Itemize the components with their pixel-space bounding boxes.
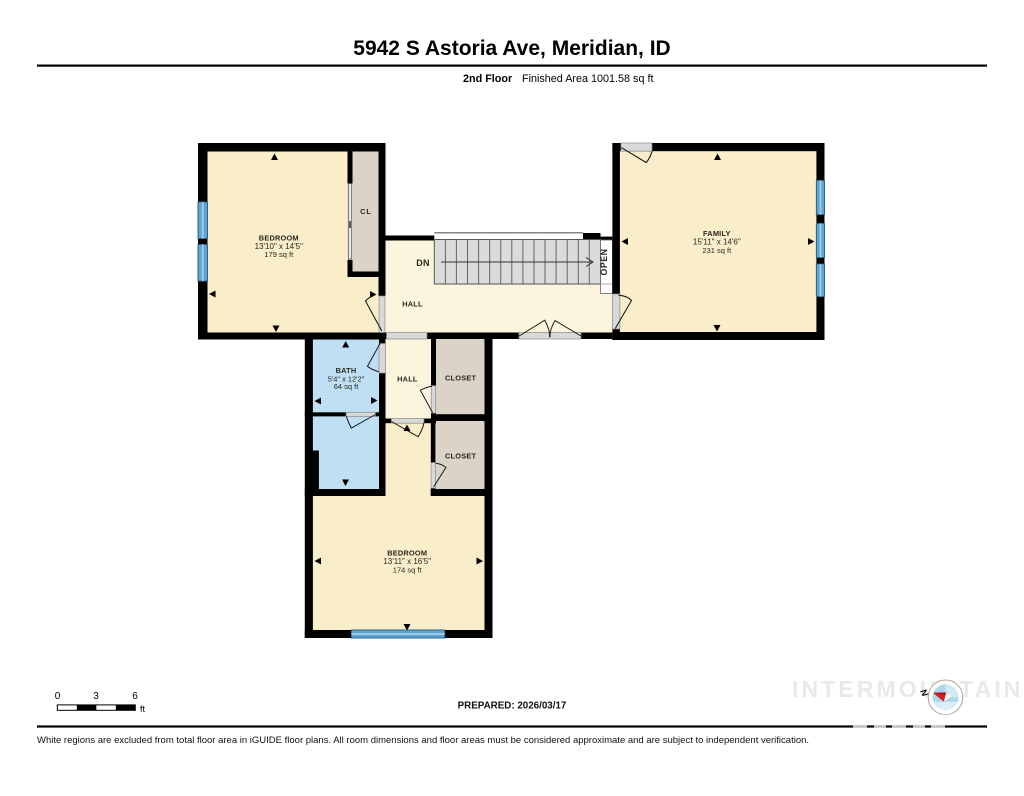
svg-text:White regions are excluded fro: White regions are excluded from total fl… xyxy=(37,735,809,746)
svg-text:Finished Area 1001.58 sq ft: Finished Area 1001.58 sq ft xyxy=(522,73,653,85)
svg-text:231 sq ft: 231 sq ft xyxy=(702,246,732,255)
svg-text:DN: DN xyxy=(416,258,429,268)
svg-text:HALL: HALL xyxy=(402,300,423,309)
svg-text:CLOSET: CLOSET xyxy=(445,373,476,382)
svg-text:6: 6 xyxy=(132,691,138,702)
svg-text:3: 3 xyxy=(93,691,99,702)
svg-text:174 sq ft: 174 sq ft xyxy=(393,566,423,575)
svg-text:ft: ft xyxy=(140,704,146,714)
svg-text:CLOSET: CLOSET xyxy=(445,451,476,460)
svg-text:179 sq ft: 179 sq ft xyxy=(264,250,294,259)
svg-text:INTERMOUNTAIN: INTERMOUNTAIN xyxy=(792,676,1024,702)
svg-text:CL: CL xyxy=(360,207,372,216)
svg-text:5942 S Astoria Ave, Meridian,: 5942 S Astoria Ave, Meridian, ID xyxy=(353,37,670,60)
svg-text:HALL: HALL xyxy=(397,374,418,383)
svg-text:2nd Floor: 2nd Floor xyxy=(463,73,513,85)
svg-text:64 sq ft: 64 sq ft xyxy=(334,382,360,391)
svg-text:FAMILY: FAMILY xyxy=(703,229,731,238)
svg-text:PREPARED: 2026/03/17: PREPARED: 2026/03/17 xyxy=(458,701,567,712)
svg-text:OPEN: OPEN xyxy=(599,249,609,276)
svg-text:0: 0 xyxy=(55,691,61,702)
